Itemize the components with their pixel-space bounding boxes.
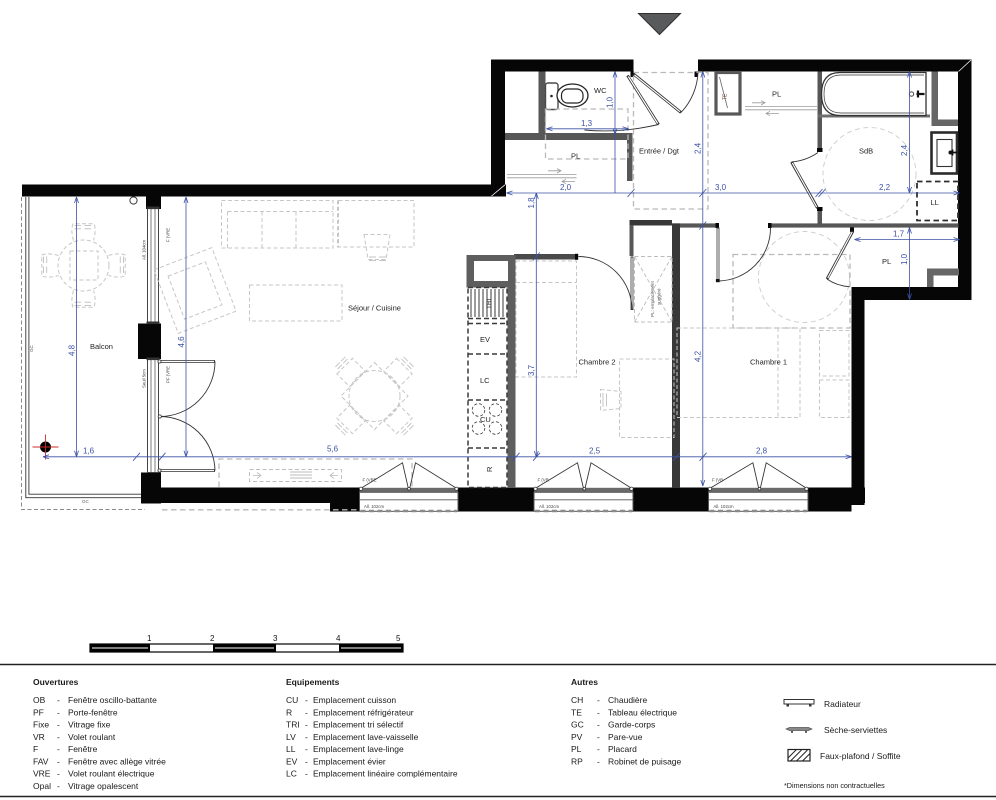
svg-text:Sèche-serviettes: Sèche-serviettes bbox=[824, 725, 887, 735]
svg-text:CH: CH bbox=[571, 695, 583, 705]
svg-text:R: R bbox=[485, 466, 494, 472]
svg-text:2,8: 2,8 bbox=[756, 447, 768, 456]
svg-text:Emplacement cuisson: Emplacement cuisson bbox=[313, 695, 396, 705]
svg-text:-: - bbox=[57, 720, 60, 730]
svg-text:Ouvertures: Ouvertures bbox=[33, 677, 79, 687]
svg-text:1,6: 1,6 bbox=[83, 447, 95, 456]
svg-text:F (VRE: F (VRE bbox=[166, 228, 171, 242]
svg-text:-: - bbox=[597, 707, 600, 717]
svg-text:FAV: FAV bbox=[33, 756, 49, 766]
svg-text:Seuil 5cm: Seuil 5cm bbox=[142, 369, 147, 388]
svg-text:F: F bbox=[33, 744, 38, 754]
svg-text:PL: emplacement: PL: emplacement bbox=[650, 281, 655, 317]
svg-text:VR: VR bbox=[33, 732, 45, 742]
svg-text:-: - bbox=[57, 707, 60, 717]
svg-text:TRI: TRI bbox=[486, 298, 493, 309]
svg-text:-: - bbox=[305, 720, 308, 730]
svg-text:OB: OB bbox=[33, 695, 46, 705]
svg-text:PF: PF bbox=[33, 707, 44, 717]
svg-text:-: - bbox=[57, 781, 60, 791]
svg-text:Placard: Placard bbox=[608, 744, 637, 754]
svg-text:Balcon: Balcon bbox=[90, 342, 113, 351]
svg-text:EV: EV bbox=[480, 335, 490, 344]
svg-text:LC: LC bbox=[286, 769, 297, 779]
svg-text:All. 102cm: All. 102cm bbox=[539, 504, 559, 509]
svg-text:-: - bbox=[57, 732, 60, 742]
svg-text:PV: PV bbox=[571, 732, 583, 742]
svg-text:TE: TE bbox=[571, 707, 582, 717]
svg-text:Robinet de puisage: Robinet de puisage bbox=[608, 756, 682, 766]
svg-text:3,0: 3,0 bbox=[715, 183, 727, 192]
svg-text:All. 104cm: All. 104cm bbox=[142, 240, 147, 260]
svg-text:LV: LV bbox=[286, 732, 296, 742]
svg-text:PF (VRE: PF (VRE bbox=[166, 366, 171, 383]
svg-text:-: - bbox=[305, 756, 308, 766]
svg-text:Emplacement réfrigérateur: Emplacement réfrigérateur bbox=[313, 707, 414, 717]
svg-text:Chaudière: Chaudière bbox=[608, 695, 647, 705]
svg-text:4: 4 bbox=[336, 634, 341, 643]
svg-text:WC: WC bbox=[594, 86, 607, 95]
svg-text:Séjour / Cuisine: Séjour / Cuisine bbox=[348, 304, 401, 313]
svg-text:CU: CU bbox=[480, 415, 491, 424]
svg-text:suggéré: suggéré bbox=[657, 288, 662, 305]
svg-text:3: 3 bbox=[273, 634, 278, 643]
svg-text:-: - bbox=[597, 756, 600, 766]
svg-text:Porte-fenêtre: Porte-fenêtre bbox=[68, 707, 118, 717]
svg-text:Faux-plafond / Soffite: Faux-plafond / Soffite bbox=[820, 751, 901, 761]
svg-text:-: - bbox=[305, 769, 308, 779]
svg-text:-: - bbox=[57, 756, 60, 766]
svg-text:-: - bbox=[597, 732, 600, 742]
svg-text:-: - bbox=[597, 744, 600, 754]
svg-text:-: - bbox=[305, 707, 308, 717]
svg-text:Fenêtre oscillo-battante: Fenêtre oscillo-battante bbox=[68, 695, 157, 705]
svg-text:All. 102cm: All. 102cm bbox=[364, 504, 384, 509]
svg-text:Chambre 2: Chambre 2 bbox=[579, 358, 616, 367]
svg-text:1,8: 1,8 bbox=[527, 197, 536, 209]
svg-text:F (VRE: F (VRE bbox=[363, 478, 377, 483]
svg-text:4,8: 4,8 bbox=[68, 344, 77, 356]
svg-text:1: 1 bbox=[147, 634, 152, 643]
svg-text:LL: LL bbox=[931, 198, 939, 207]
svg-text:1,3: 1,3 bbox=[581, 119, 593, 128]
svg-text:3,7: 3,7 bbox=[527, 364, 536, 376]
svg-text:Entrée / Dgt: Entrée / Dgt bbox=[639, 147, 680, 156]
svg-text:GC: GC bbox=[29, 344, 34, 352]
svg-text:Autres: Autres bbox=[571, 677, 598, 687]
svg-text:*Dimensions non contractuelles: *Dimensions non contractuelles bbox=[784, 781, 885, 790]
svg-text:4,2: 4,2 bbox=[694, 350, 703, 362]
svg-text:Equipements: Equipements bbox=[286, 677, 340, 687]
svg-text:CU: CU bbox=[286, 695, 298, 705]
svg-text:PL: PL bbox=[772, 90, 781, 99]
svg-text:SdB: SdB bbox=[859, 147, 873, 156]
svg-text:5,6: 5,6 bbox=[327, 445, 339, 454]
svg-text:PL: PL bbox=[571, 744, 582, 754]
svg-text:PL: PL bbox=[571, 152, 580, 161]
svg-text:Pare-vue: Pare-vue bbox=[608, 732, 643, 742]
svg-text:-: - bbox=[57, 769, 60, 779]
svg-text:2,2: 2,2 bbox=[879, 183, 891, 192]
svg-text:2: 2 bbox=[210, 634, 215, 643]
svg-text:-: - bbox=[597, 695, 600, 705]
svg-text:All. 102cm: All. 102cm bbox=[714, 504, 734, 509]
svg-text:Garde-corps: Garde-corps bbox=[608, 720, 655, 730]
svg-text:4,6: 4,6 bbox=[177, 336, 186, 348]
svg-text:RP: RP bbox=[571, 756, 583, 766]
svg-text:-: - bbox=[305, 695, 308, 705]
svg-text:1,0: 1,0 bbox=[606, 96, 615, 108]
svg-text:PL: PL bbox=[882, 257, 891, 266]
svg-text:F (VR: F (VR bbox=[712, 478, 723, 483]
svg-text:TRI: TRI bbox=[286, 720, 300, 730]
svg-text:GC: GC bbox=[82, 499, 90, 504]
svg-text:Volet roulant électrique: Volet roulant électrique bbox=[68, 769, 155, 779]
svg-text:Fixe: Fixe bbox=[33, 720, 49, 730]
svg-text:1,0: 1,0 bbox=[900, 253, 909, 265]
svg-text:1,7: 1,7 bbox=[893, 230, 905, 239]
svg-text:LL: LL bbox=[286, 744, 296, 754]
svg-text:GC: GC bbox=[571, 720, 584, 730]
svg-text:Tableau électrique: Tableau électrique bbox=[608, 707, 677, 717]
svg-text:Vitrage opalescent: Vitrage opalescent bbox=[68, 781, 139, 791]
svg-text:Emplacement évier: Emplacement évier bbox=[313, 756, 386, 766]
svg-text:Emplacement linéaire complémen: Emplacement linéaire complémentaire bbox=[313, 769, 458, 779]
svg-text:2,4: 2,4 bbox=[694, 142, 703, 154]
svg-text:-: - bbox=[305, 744, 308, 754]
svg-text:EV: EV bbox=[286, 756, 298, 766]
svg-text:5: 5 bbox=[396, 634, 401, 643]
svg-text:LC: LC bbox=[480, 376, 490, 385]
svg-text:VRE: VRE bbox=[33, 769, 51, 779]
svg-text:-: - bbox=[57, 695, 60, 705]
svg-text:-: - bbox=[305, 732, 308, 742]
svg-text:-: - bbox=[597, 720, 600, 730]
svg-text:2,4: 2,4 bbox=[900, 144, 909, 156]
svg-text:2,0: 2,0 bbox=[560, 183, 572, 192]
svg-text:-: - bbox=[57, 744, 60, 754]
svg-text:Fenêtre avec allège vitrée: Fenêtre avec allège vitrée bbox=[68, 756, 166, 766]
svg-text:Volet roulant: Volet roulant bbox=[68, 732, 116, 742]
svg-text:2,5: 2,5 bbox=[589, 447, 601, 456]
svg-text:Opal: Opal bbox=[33, 781, 51, 791]
svg-text:Fenêtre: Fenêtre bbox=[68, 744, 98, 754]
svg-text:R: R bbox=[286, 707, 292, 717]
svg-text:Vitrage fixe: Vitrage fixe bbox=[68, 720, 111, 730]
svg-text:Emplacement lave-vaisselle: Emplacement lave-vaisselle bbox=[313, 732, 419, 742]
svg-text:Chambre 1: Chambre 1 bbox=[750, 358, 787, 367]
svg-text:TE: TE bbox=[723, 93, 729, 100]
svg-text:Emplacement lave-linge: Emplacement lave-linge bbox=[313, 744, 404, 754]
svg-text:F (VR: F (VR bbox=[538, 478, 549, 483]
svg-text:Emplacement tri sélectif: Emplacement tri sélectif bbox=[313, 720, 404, 730]
svg-text:Radiateur: Radiateur bbox=[824, 699, 861, 709]
